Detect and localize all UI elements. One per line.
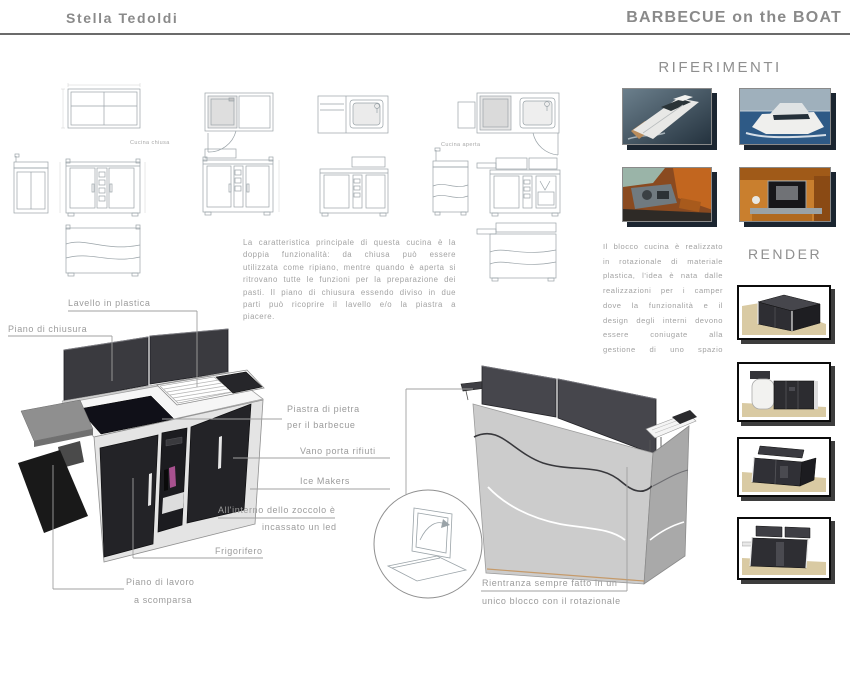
callout-zoccolo-line1: All'interno dello zoccolo è bbox=[218, 505, 335, 515]
tech-drawing-closed-group bbox=[14, 83, 145, 276]
callout-piastra-line2: per il barbecue bbox=[287, 420, 356, 430]
presentation-board: Stella Tedoldi BARBECUE on the BOAT bbox=[0, 0, 850, 673]
render-open-unit-front-illustration bbox=[742, 522, 826, 575]
page-title: BARBECUE on the BOAT bbox=[626, 9, 842, 27]
reference-photo-galley-interior bbox=[739, 167, 831, 222]
render-open-unit-front-view bbox=[737, 517, 831, 580]
render-closed-unit-perspective bbox=[737, 285, 831, 340]
main-description: La caratteristica principale di questa c… bbox=[243, 237, 456, 324]
callout-frigorifero: Frigorifero bbox=[215, 546, 263, 556]
render-heading: RENDER bbox=[712, 246, 850, 262]
header-rule bbox=[0, 33, 850, 35]
callout-zoccolo-line2: incassato un led bbox=[262, 522, 337, 532]
render-unit-front-view bbox=[737, 362, 831, 422]
caption-cucina-aperta: Cucina aperta bbox=[441, 142, 480, 148]
motorboat-aerial-illustration bbox=[623, 89, 712, 145]
reference-photo-motorboat-aerial bbox=[622, 88, 712, 145]
cockpit-interior-illustration bbox=[623, 168, 712, 222]
riferimenti-heading: RIFERIMENTI bbox=[604, 59, 836, 76]
render-open-unit-perspective bbox=[737, 437, 831, 497]
callout-ice-makers: Ice Makers bbox=[300, 476, 350, 486]
render-closed-unit-illustration bbox=[742, 290, 826, 335]
reference-photo-yacht-sea bbox=[739, 88, 831, 145]
galley-interior-illustration bbox=[740, 168, 831, 222]
caption-cucina-chiusa: Cucina chiusa bbox=[130, 140, 170, 146]
callout-lavello: Lavello in plastica bbox=[68, 298, 150, 308]
note-rientranza-line1: Rientranza sempre fatto in un bbox=[482, 578, 617, 588]
yacht-sea-illustration bbox=[740, 89, 831, 145]
reference-photo-cockpit-interior bbox=[622, 167, 712, 222]
callout-piano-lavoro-line1: Piano di lavoro bbox=[126, 577, 195, 587]
callout-vano-rifiuti: Vano porta rifiuti bbox=[300, 446, 376, 456]
callout-piano-lavoro-line2: a scomparsa bbox=[134, 595, 192, 605]
render-unit-front-illustration bbox=[742, 367, 826, 417]
callout-piano-chiusura: Piano di chiusura bbox=[8, 324, 87, 334]
closed-unit-illustration bbox=[461, 366, 697, 584]
callout-piastra-line1: Piastra di pietra bbox=[287, 404, 360, 414]
open-unit-illustration bbox=[18, 329, 264, 562]
note-rientranza-line2: unico blocco con il rotazionale bbox=[482, 596, 621, 606]
tech-drawing-group-b bbox=[203, 93, 279, 215]
render-open-unit-illustration bbox=[742, 442, 826, 492]
tech-drawing-group-c bbox=[318, 96, 388, 216]
side-description: Il blocco cucina è realizzato in rotazio… bbox=[603, 240, 723, 358]
author-name: Stella Tedoldi bbox=[66, 10, 178, 26]
detail-circle bbox=[374, 490, 482, 598]
